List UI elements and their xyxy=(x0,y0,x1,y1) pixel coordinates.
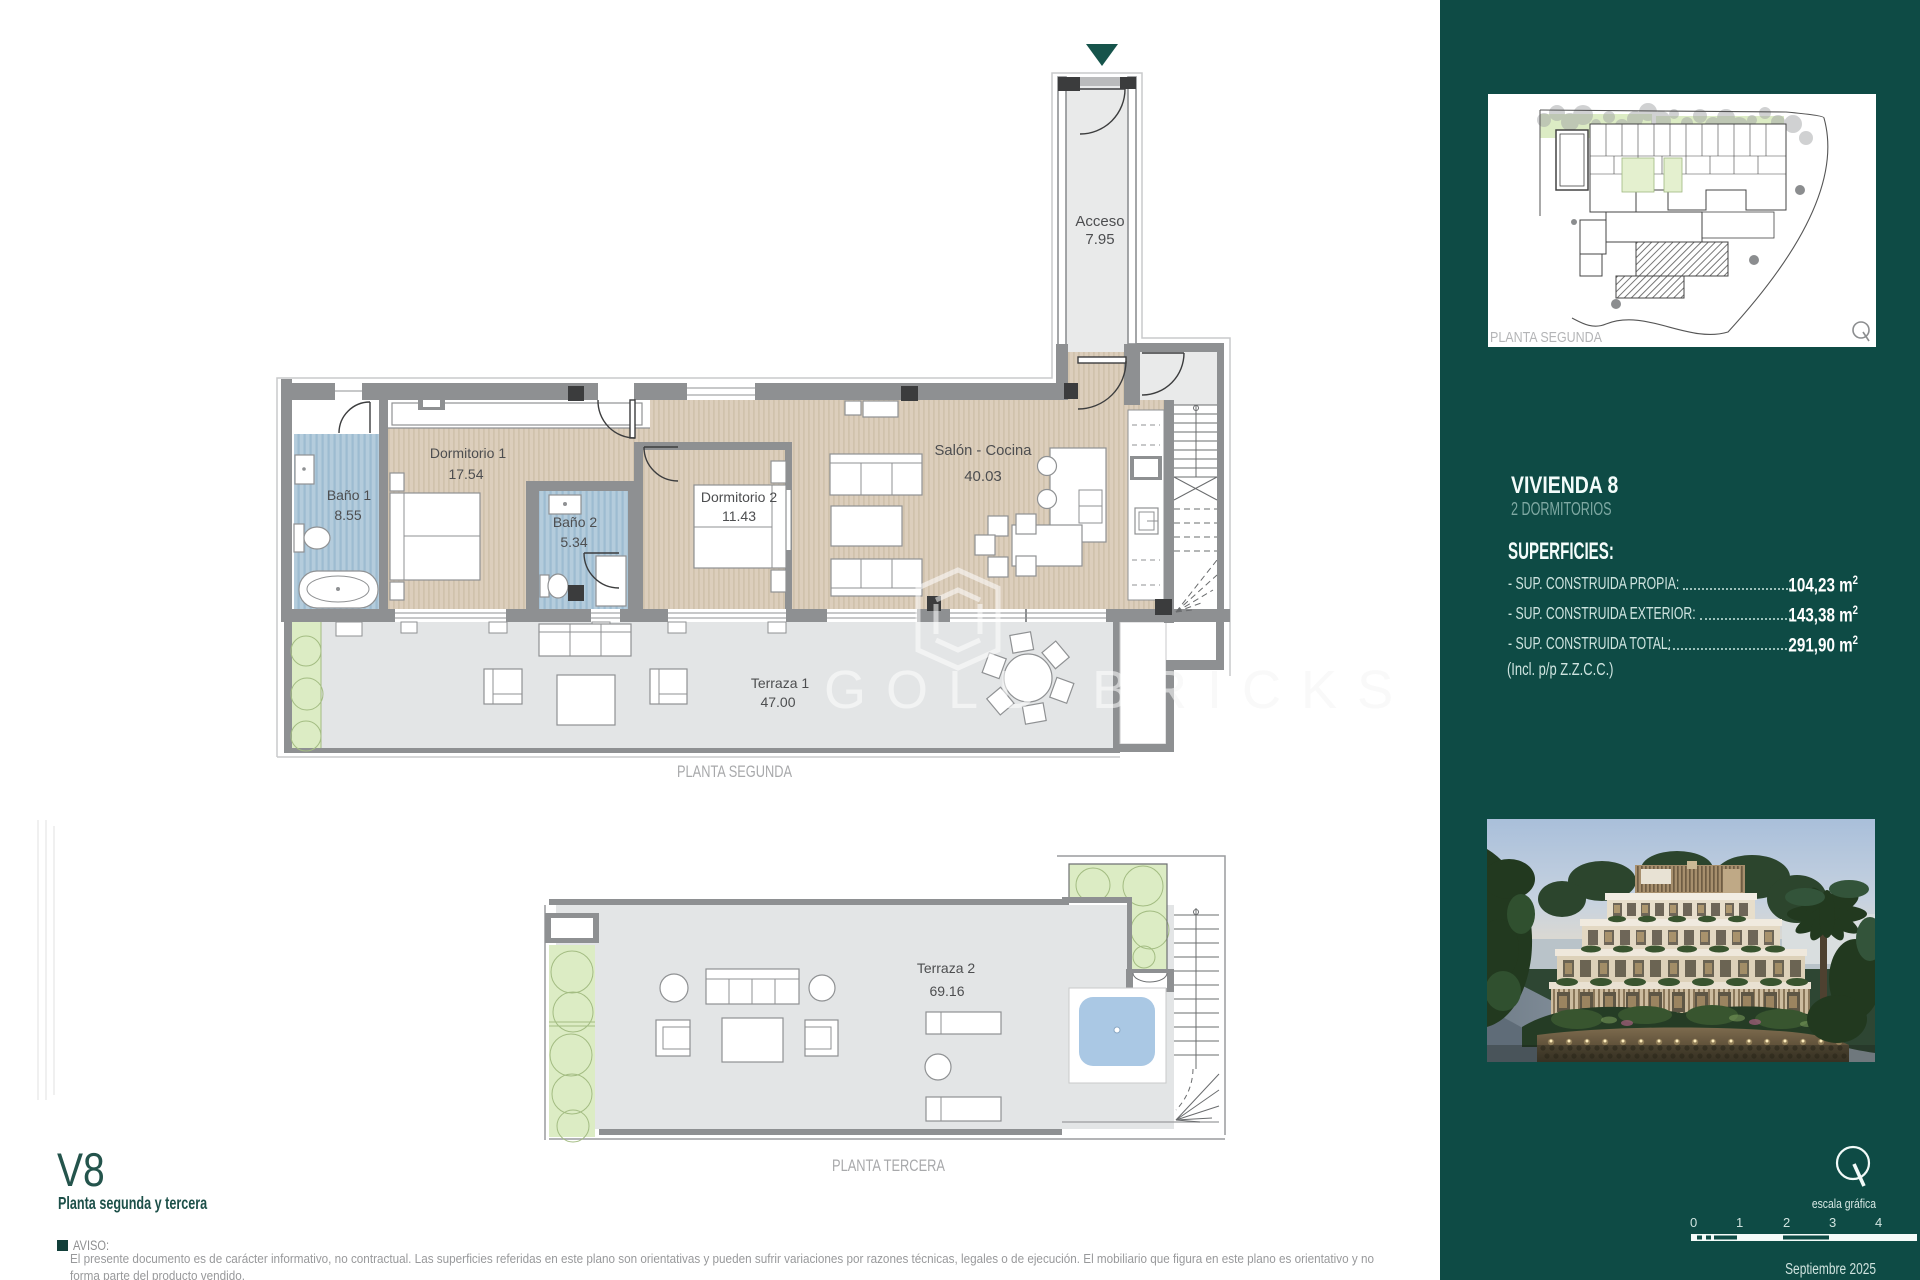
svg-text:Dormitorio 1: Dormitorio 1 xyxy=(430,445,506,461)
svg-text:11.43: 11.43 xyxy=(722,508,756,524)
svg-text:Acceso: Acceso xyxy=(1075,213,1124,230)
svg-text:PLANTA TERCERA: PLANTA TERCERA xyxy=(832,1156,945,1175)
svg-text:5.34: 5.34 xyxy=(560,534,587,550)
svg-text:0: 0 xyxy=(1690,1215,1697,1230)
svg-text:7.95: 7.95 xyxy=(1085,231,1114,248)
svg-text:17.54: 17.54 xyxy=(448,466,483,482)
svg-text:GOLD BRICKS: GOLD BRICKS xyxy=(824,660,1413,720)
svg-text:1: 1 xyxy=(1736,1215,1743,1230)
svg-text:Baño 2: Baño 2 xyxy=(553,514,598,530)
svg-text:PLANTA SEGUNDA: PLANTA SEGUNDA xyxy=(677,762,792,781)
svg-text:Salón - Cocina: Salón - Cocina xyxy=(935,442,1033,459)
svg-text:Dormitorio 2: Dormitorio 2 xyxy=(701,489,777,505)
svg-text:40.03: 40.03 xyxy=(964,468,1002,485)
svg-text:Baño 1: Baño 1 xyxy=(327,487,372,503)
svg-text:69.16: 69.16 xyxy=(929,983,964,999)
svg-text:2: 2 xyxy=(1783,1215,1790,1230)
svg-text:Terraza 2: Terraza 2 xyxy=(917,960,976,976)
svg-text:8.55: 8.55 xyxy=(334,507,361,523)
svg-text:4: 4 xyxy=(1875,1215,1882,1230)
svg-text:PLANTA SEGUNDA: PLANTA SEGUNDA xyxy=(1490,329,1602,346)
svg-text:47.00: 47.00 xyxy=(760,694,795,710)
svg-text:3: 3 xyxy=(1829,1215,1836,1230)
svg-text:Terraza 1: Terraza 1 xyxy=(751,675,810,691)
